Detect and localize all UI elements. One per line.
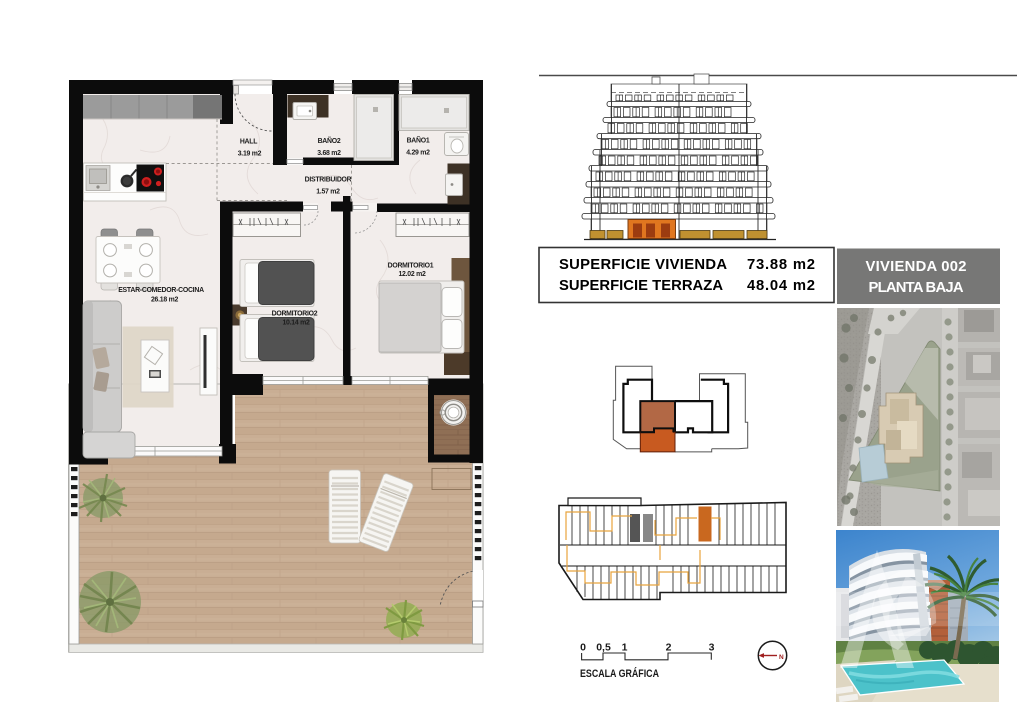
svg-text:12.02 m2: 12.02 m2: [398, 271, 426, 278]
svg-text:1.57 m2: 1.57 m2: [316, 189, 340, 196]
svg-text:3.19 m2: 3.19 m2: [238, 151, 262, 158]
svg-text:HALL: HALL: [240, 139, 257, 146]
svg-text:SUPERFICIE VIVIENDA: SUPERFICIE VIVIENDA: [559, 257, 727, 273]
svg-text:3: 3: [709, 642, 715, 654]
svg-text:BAÑO1: BAÑO1: [407, 136, 430, 145]
svg-text:PLANTA BAJA: PLANTA BAJA: [869, 280, 964, 296]
svg-text:VIVIENDA 002: VIVIENDA 002: [866, 259, 967, 275]
svg-text:1: 1: [622, 642, 628, 654]
svg-text:DORMITORIO2: DORMITORIO2: [272, 311, 318, 318]
svg-text:26.18 m2: 26.18 m2: [151, 297, 179, 304]
svg-text:ESTAR-COMEDOR-COCINA: ESTAR-COMEDOR-COCINA: [118, 287, 204, 294]
svg-text:0: 0: [580, 642, 586, 654]
svg-text:N: N: [779, 654, 784, 661]
svg-text:2: 2: [666, 642, 672, 654]
svg-text:ESCALA GRÁFICA: ESCALA GRÁFICA: [580, 667, 659, 680]
svg-text:0,5: 0,5: [596, 642, 611, 654]
svg-text:BAÑO2: BAÑO2: [318, 136, 341, 145]
svg-text:DORMITORIO1: DORMITORIO1: [388, 263, 434, 270]
svg-text:SUPERFICIE TERRAZA: SUPERFICIE TERRAZA: [559, 278, 723, 294]
svg-text:48.04 m2: 48.04 m2: [747, 278, 815, 294]
svg-text:10.14 m2: 10.14 m2: [282, 320, 310, 327]
svg-text:3.68 m2: 3.68 m2: [317, 150, 341, 157]
svg-text:DISTRIBUIDOR: DISTRIBUIDOR: [305, 177, 352, 184]
svg-text:4.29 m2: 4.29 m2: [406, 150, 430, 157]
svg-text:73.88 m2: 73.88 m2: [747, 257, 815, 273]
